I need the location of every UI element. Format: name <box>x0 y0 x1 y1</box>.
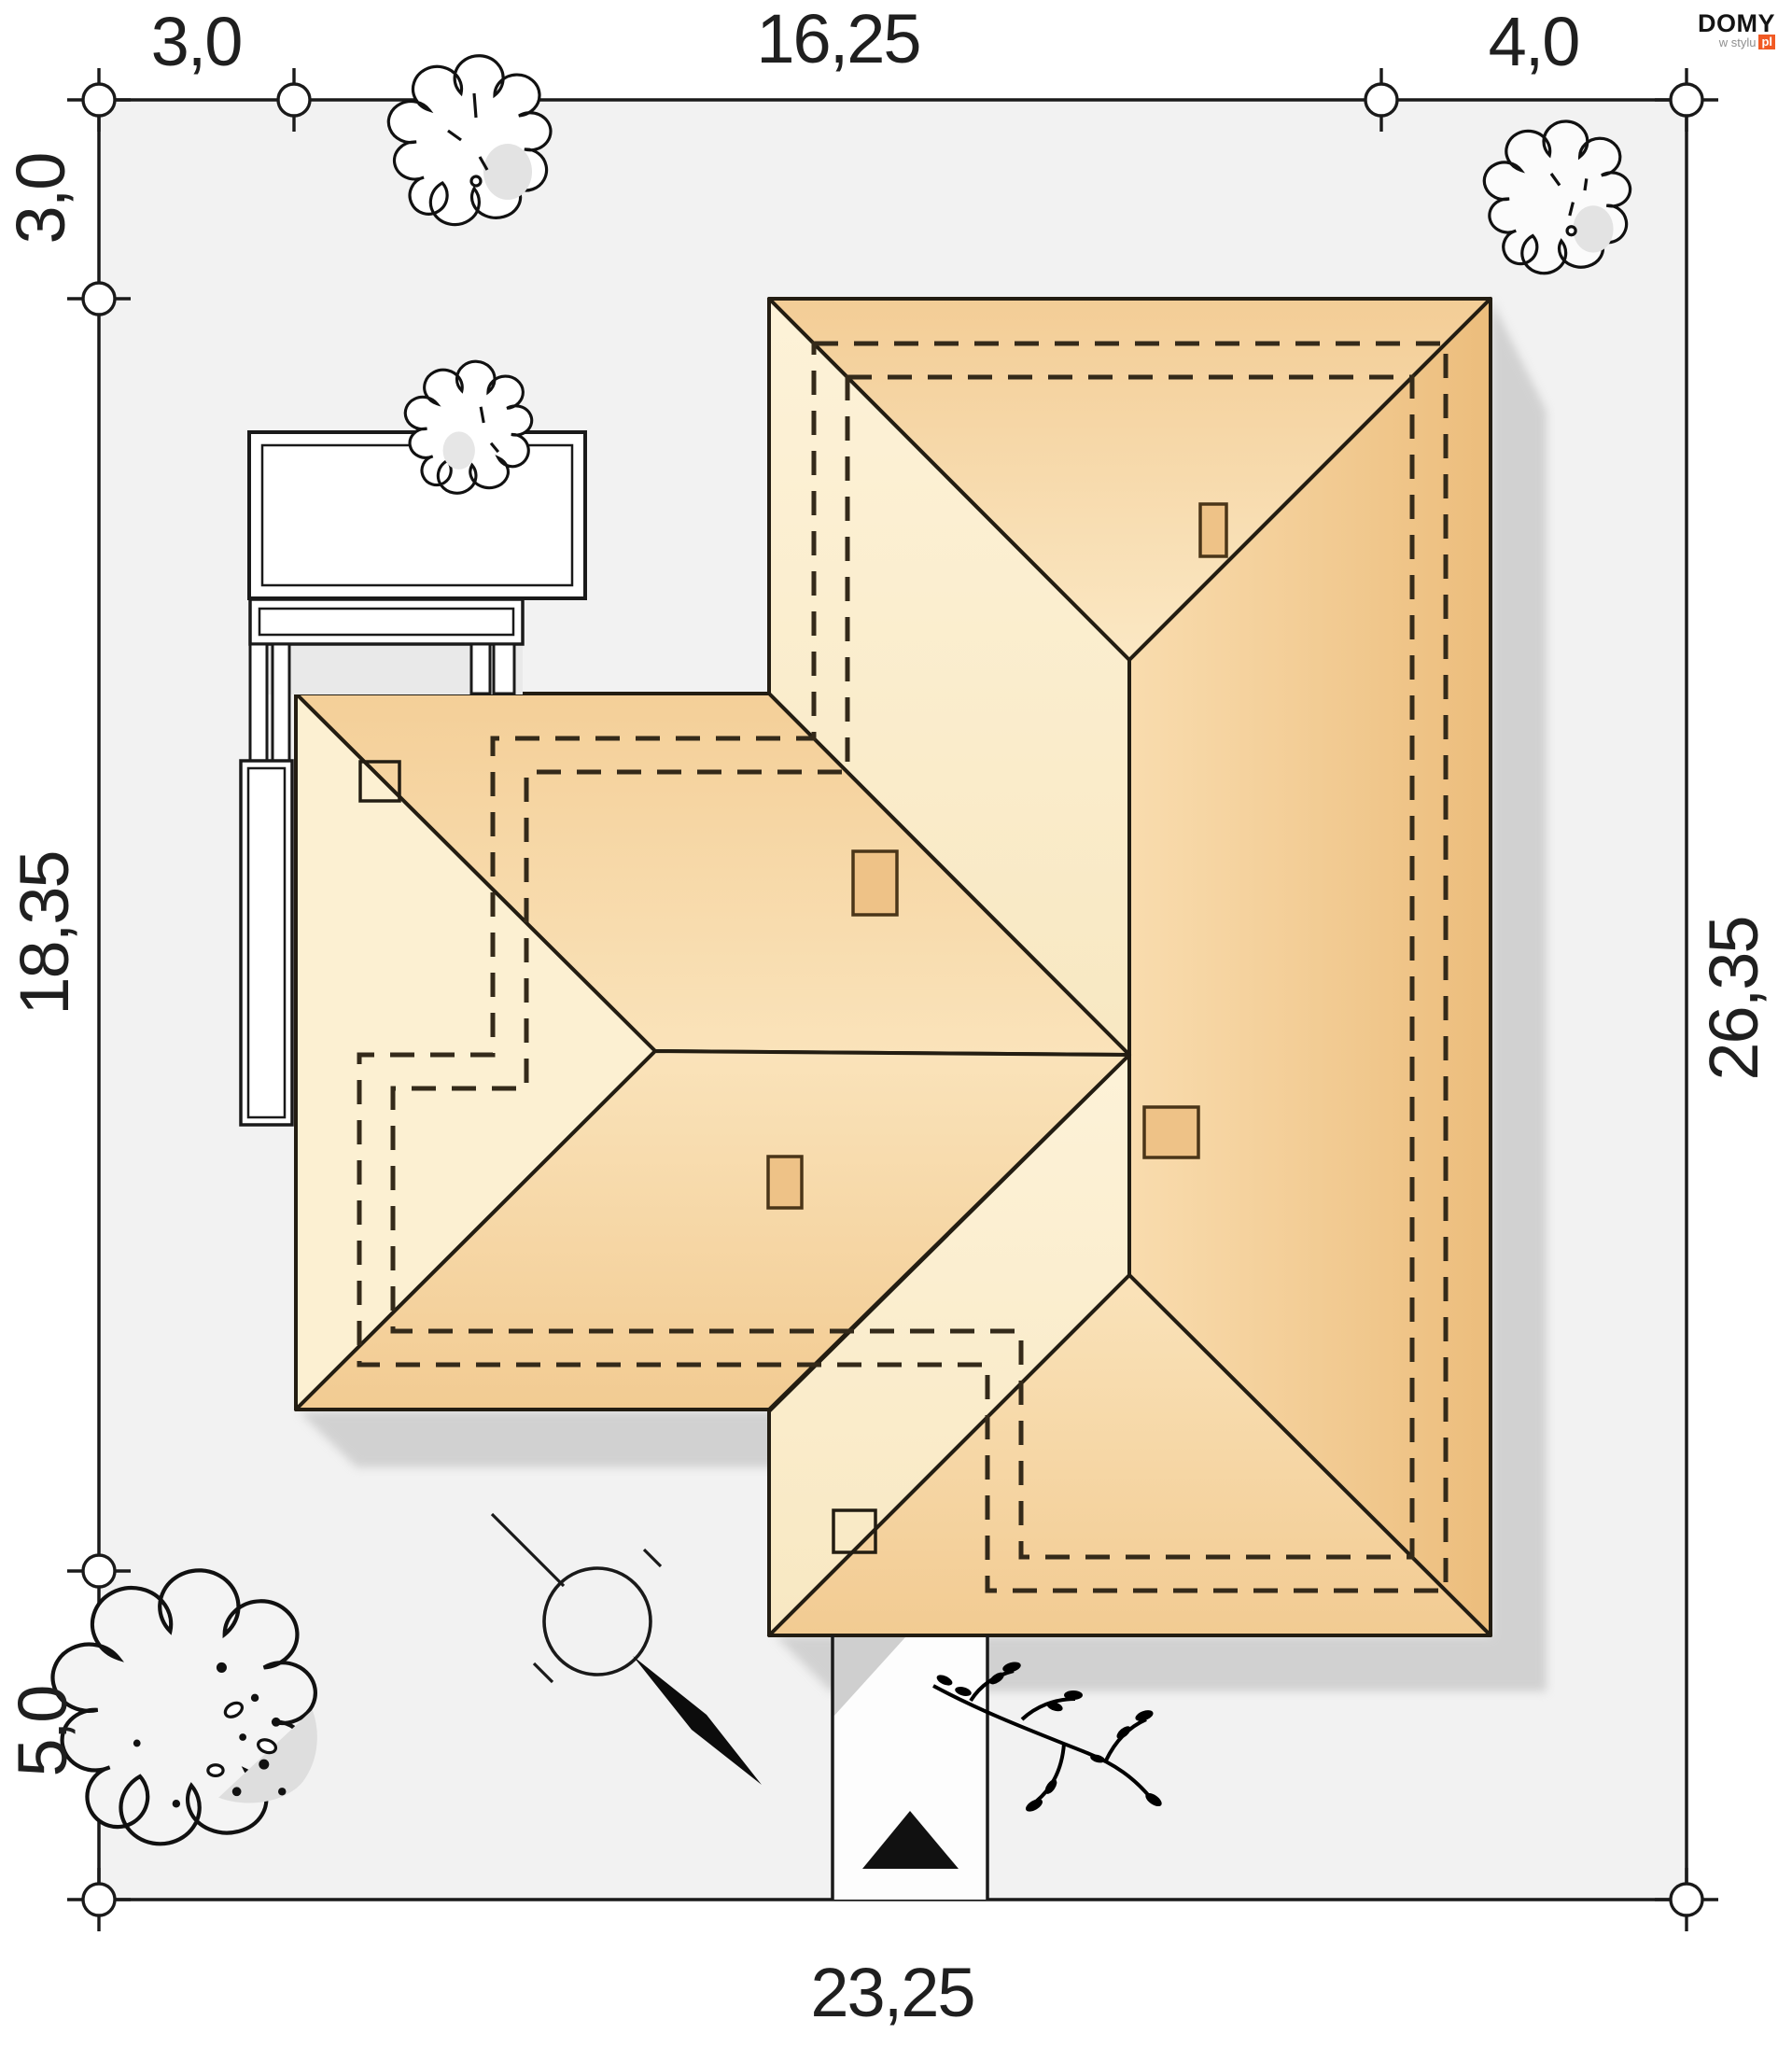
carport-post <box>471 644 490 694</box>
brand-logo: DOMY w stylu pl <box>1671 11 1775 49</box>
dimension-top-center: 16,25 <box>651 5 1025 74</box>
chimney-icon <box>1200 504 1226 556</box>
dimension-right: 26,35 <box>1700 849 1769 1148</box>
carport-post <box>494 644 514 694</box>
dimension-top-right: 4,0 <box>1440 7 1627 77</box>
site-plan-page: 3,0 16,25 4,0 3,0 18,35 5,0 26,35 23,25 … <box>0 0 1792 2048</box>
dimension-bottom: 23,25 <box>706 1958 1079 2027</box>
chimney-icon <box>768 1157 802 1208</box>
dimension-top-left: 3,0 <box>103 7 289 77</box>
carport-post <box>273 644 289 762</box>
chimney-icon <box>853 851 897 915</box>
dimension-left-middle: 18,35 <box>10 784 79 1083</box>
site-plan-drawing <box>0 0 1792 2048</box>
brand-domain-suffix: pl <box>1758 35 1775 49</box>
brand-tagline: w stylu <box>1719 35 1757 49</box>
dimension-left-lower: 5,0 <box>8 1629 77 1834</box>
chimney-icon <box>1144 1107 1198 1157</box>
carport-post <box>250 644 267 762</box>
brand-name: DOMY <box>1671 11 1775 36</box>
dimension-left-upper: 3,0 <box>7 96 76 302</box>
